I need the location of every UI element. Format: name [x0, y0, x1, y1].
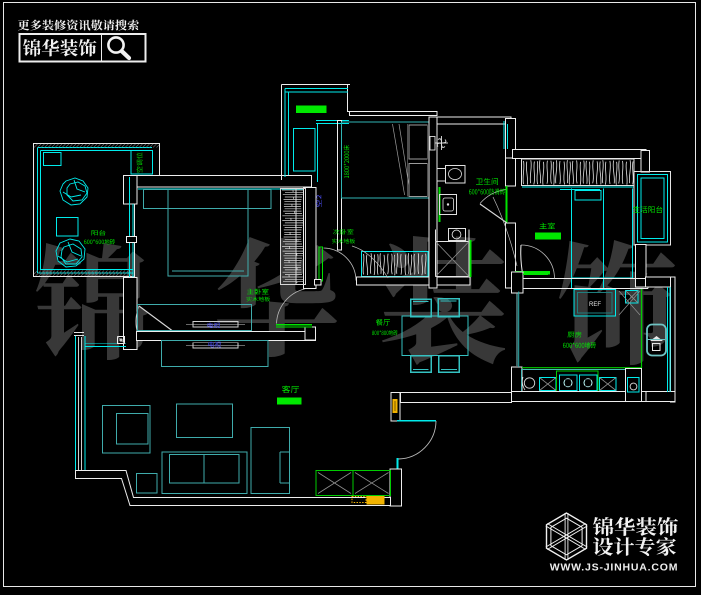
- svg-text:WWW.JS-JINHUA.COM: WWW.JS-JINHUA.COM: [550, 562, 679, 574]
- svg-text:REF: REF: [589, 302, 601, 308]
